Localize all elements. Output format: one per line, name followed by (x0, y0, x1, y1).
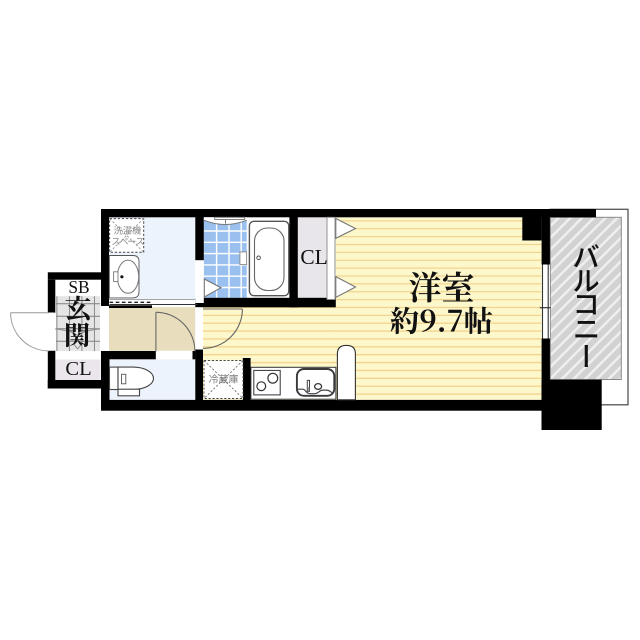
svg-text:CL: CL (300, 245, 327, 269)
svg-text:SB: SB (68, 277, 89, 297)
svg-text:CL: CL (65, 358, 91, 380)
